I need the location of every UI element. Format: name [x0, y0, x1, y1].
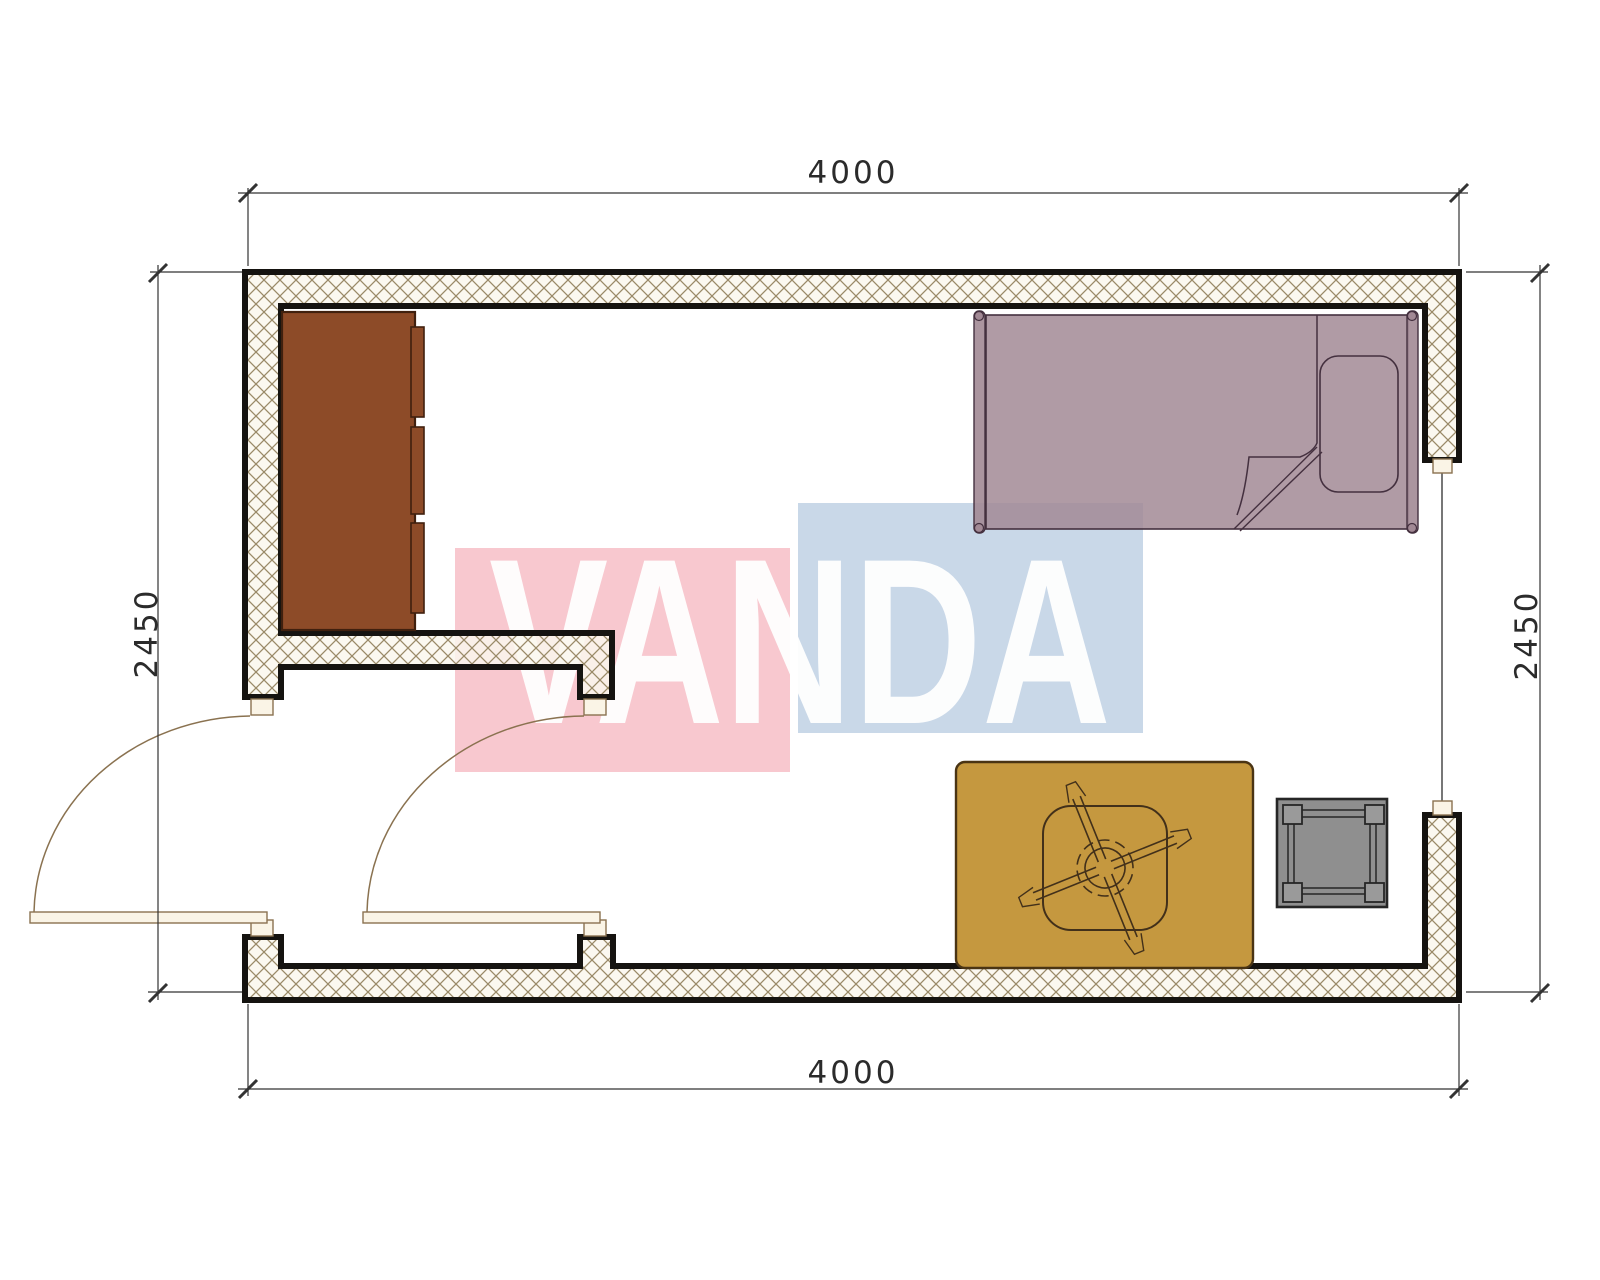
single-bed [974, 311, 1418, 533]
dim-label-left: 2450 [129, 588, 165, 679]
interior-door-jamb-top [584, 699, 606, 715]
wardrobe [282, 312, 424, 630]
interior-door-leaf [363, 912, 600, 923]
floor-plan-drawing: VANDA [0, 0, 1600, 1280]
window-jamb-bottom [1433, 801, 1452, 815]
wardrobe-body [282, 312, 415, 630]
stool [1277, 799, 1387, 907]
entry-door-swing-arc [34, 716, 250, 912]
stool-leg [1365, 805, 1384, 824]
stool-leg [1283, 883, 1302, 902]
wardrobe-door-3 [411, 523, 424, 613]
floor-plan-page: VANDA [0, 0, 1600, 1280]
entry-door [30, 699, 273, 936]
wardrobe-door-1 [411, 327, 424, 417]
window-jamb-top [1433, 459, 1452, 473]
bed-post-knob [1408, 312, 1417, 321]
bed-post-knob [975, 312, 984, 321]
rug [956, 762, 1253, 968]
dim-label-top: 4000 [808, 155, 899, 191]
dim-label-right: 2450 [1509, 590, 1545, 681]
entry-door-jamb-top [251, 699, 273, 715]
dim-label-bottom: 4000 [808, 1055, 899, 1091]
bed-post-knob [1408, 524, 1417, 533]
stool-leg [1365, 883, 1384, 902]
bed-post-knob [975, 524, 984, 533]
entry-door-leaf [30, 912, 267, 923]
bed-mattress [986, 315, 1408, 529]
stool-leg [1283, 805, 1302, 824]
bed-footboard [974, 311, 985, 533]
wardrobe-door-2 [411, 427, 424, 514]
bed-headboard [1407, 311, 1418, 533]
window [1433, 459, 1452, 815]
